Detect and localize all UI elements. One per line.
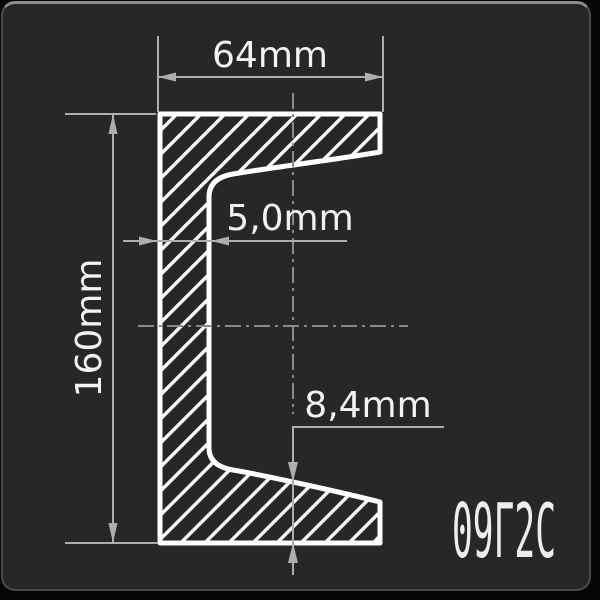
drawing-canvas: 64mm 160mm 5,0mm 8,4mm 09Г2С bbox=[0, 0, 600, 600]
dimension-height: 160mm bbox=[65, 114, 158, 543]
channel-profile-shape bbox=[160, 114, 380, 543]
arrowhead-up bbox=[109, 114, 118, 134]
dimension-width: 64mm bbox=[158, 35, 383, 112]
dimension-width-label: 64mm bbox=[212, 35, 328, 76]
dimension-web-thickness-label: 5,0mm bbox=[226, 198, 353, 239]
dimension-flange-thickness-label: 8,4mm bbox=[304, 385, 431, 426]
arrowhead-up bbox=[288, 543, 298, 563]
dimension-flange-thickness: 8,4mm bbox=[288, 385, 444, 575]
arrowhead-right bbox=[139, 237, 157, 246]
steel-grade-label: 09Г2С bbox=[452, 487, 556, 575]
dimension-height-label: 160mm bbox=[69, 259, 110, 398]
channel-profile bbox=[160, 114, 380, 543]
arrowhead-down bbox=[109, 523, 118, 543]
engineering-drawing: 64mm 160mm 5,0mm 8,4mm 09Г2С bbox=[0, 0, 600, 600]
arrowhead-right bbox=[365, 73, 383, 82]
arrowhead-left bbox=[158, 73, 176, 82]
